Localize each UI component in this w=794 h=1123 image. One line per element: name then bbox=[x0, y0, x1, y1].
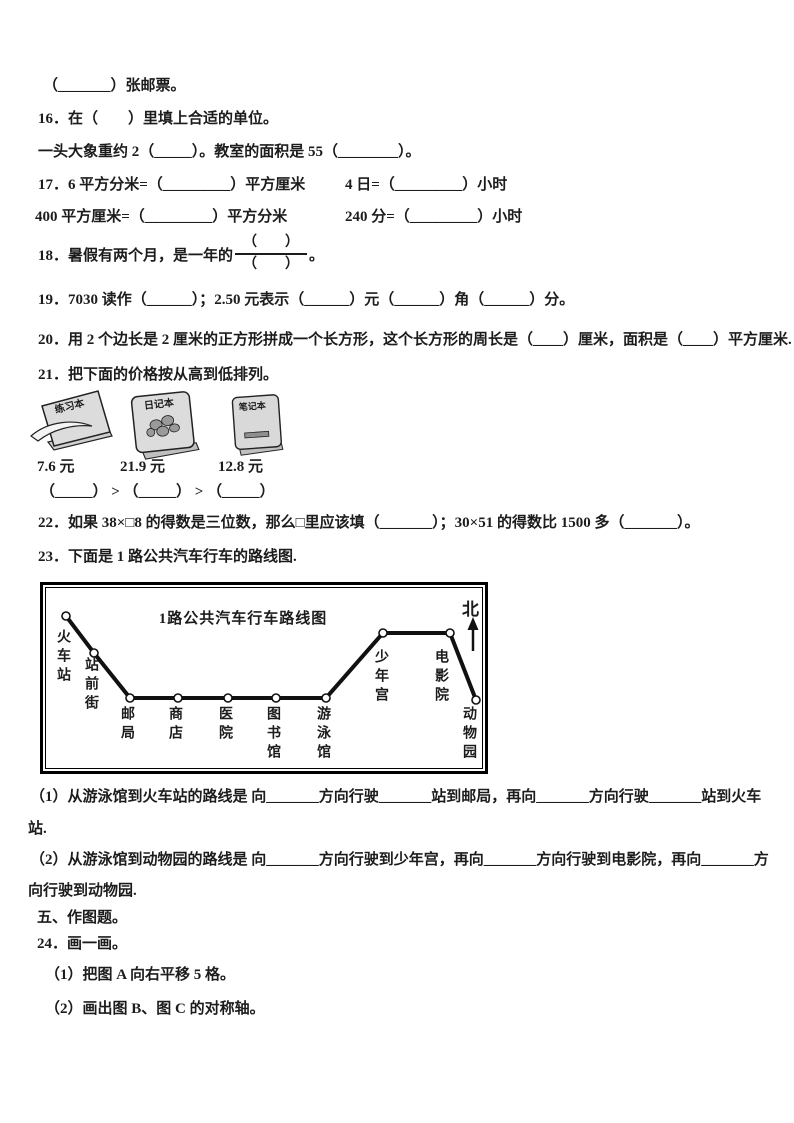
station-label: 站前街 bbox=[83, 657, 97, 714]
question-21: 21．把下面的价格按从高到低排列。 bbox=[38, 366, 278, 384]
station-node bbox=[272, 694, 280, 702]
question-18-suffix: 。 bbox=[309, 244, 324, 265]
station-label: 图书馆 bbox=[265, 706, 279, 763]
north-label: 北 bbox=[462, 595, 479, 620]
question-19: 19．7030 读作（______）；2.50 元表示（______）元（___… bbox=[38, 291, 574, 309]
compare-blanks-line: （_____） > （_____） > （_____） bbox=[40, 483, 275, 501]
question-23-part2-line2: 向行驶到动物园. bbox=[28, 882, 137, 900]
fraction-numerator: （ ） bbox=[235, 234, 307, 255]
station-label: 游泳馆 bbox=[315, 706, 329, 763]
station-label: 医院 bbox=[217, 706, 231, 744]
fraction-blank: （ ） （ ） bbox=[235, 234, 307, 274]
station-node bbox=[224, 694, 232, 702]
station-node bbox=[379, 629, 387, 637]
question-22: 22．如果 38×□8 的得数是三位数，那么□里应该填（_______）；30×… bbox=[38, 514, 699, 532]
route-line bbox=[66, 616, 476, 700]
station-node bbox=[446, 629, 454, 637]
station-label: 少年宫 bbox=[373, 649, 387, 706]
station-label: 动物园 bbox=[461, 706, 475, 763]
question-24: 24．画一画。 bbox=[37, 935, 127, 953]
question-17-row1-left: 17．6 平方分米=（_________）平方厘米 bbox=[38, 176, 305, 194]
price-label: 21.9 元 bbox=[120, 455, 165, 476]
fraction-denominator: （ ） bbox=[243, 255, 299, 274]
question-23-part1-line2: 站. bbox=[28, 820, 47, 838]
diary-book-illustration: 日记本 bbox=[131, 391, 199, 460]
question-17-row1-right: 4 日=（_________）小时 bbox=[345, 176, 507, 194]
question-20: 20．用 2 个边长是 2 厘米的正方形拼成一个长方形，这个长方形的周长是（__… bbox=[38, 331, 792, 349]
station-label: 商店 bbox=[167, 706, 181, 744]
station-node bbox=[472, 696, 480, 704]
question-18-prefix: 18．暑假有两个月，是一年的 bbox=[38, 244, 233, 265]
question-16: 16．在（ ）里填上合适的单位。 bbox=[38, 110, 278, 128]
station-node bbox=[174, 694, 182, 702]
worksheet-page: （_______）张邮票。 16．在（ ）里填上合适的单位。 一头大象重约 2（… bbox=[0, 0, 794, 1123]
station-node bbox=[62, 612, 70, 620]
question-23-part1-line1: （1）从游泳馆到火车站的路线是 向_______方向行驶_______站到邮局，… bbox=[30, 788, 761, 806]
question-18: 18．暑假有两个月，是一年的 （ ） （ ） 。 bbox=[38, 234, 324, 274]
question-24-part1: （1）把图 A 向右平移 5 格。 bbox=[45, 966, 235, 984]
question-23-part2-line1: （2）从游泳馆到动物园的路线是 向_______方向行驶到少年宫，再向_____… bbox=[30, 851, 769, 869]
stamp-count-line: （_______）张邮票。 bbox=[43, 77, 186, 95]
question-23: 23．下面是 1 路公共汽车行车的路线图. bbox=[38, 548, 297, 566]
price-label: 12.8 元 bbox=[218, 455, 263, 476]
price-item-label: 笔记本 bbox=[238, 399, 267, 412]
question-16-sub: 一头大象重约 2（_____）。教室的面积是 55（________）。 bbox=[38, 143, 421, 161]
station-label: 邮局 bbox=[119, 706, 133, 744]
station-label: 火车站 bbox=[55, 629, 69, 686]
station-node bbox=[90, 649, 98, 657]
station-label: 电影院 bbox=[433, 649, 447, 706]
route-diagram: 1路公共汽车行车路线图 北 火车站站前街邮局商店医院图书馆游泳馆少年宫电影院动物… bbox=[40, 582, 488, 774]
question-24-part2: （2）画出图 B、图 C 的对称轴。 bbox=[45, 1000, 265, 1018]
notebook-illustration: 笔记本 bbox=[232, 394, 283, 455]
question-17-row2-left: 400 平方厘米=（_________）平方分米 bbox=[35, 208, 287, 226]
question-17-row2-right: 240 分=（_________）小时 bbox=[345, 208, 522, 226]
station-node bbox=[322, 694, 330, 702]
section-5-heading: 五、作图题。 bbox=[37, 909, 127, 927]
exercise-book-illustration: 练习本 bbox=[31, 391, 112, 450]
price-items-illustration: 练习本 日记本 笔记本 bbox=[28, 384, 298, 462]
route-title: 1路公共汽车行车路线图 bbox=[113, 607, 373, 628]
station-node bbox=[126, 694, 134, 702]
price-label: 7.6 元 bbox=[37, 455, 75, 476]
